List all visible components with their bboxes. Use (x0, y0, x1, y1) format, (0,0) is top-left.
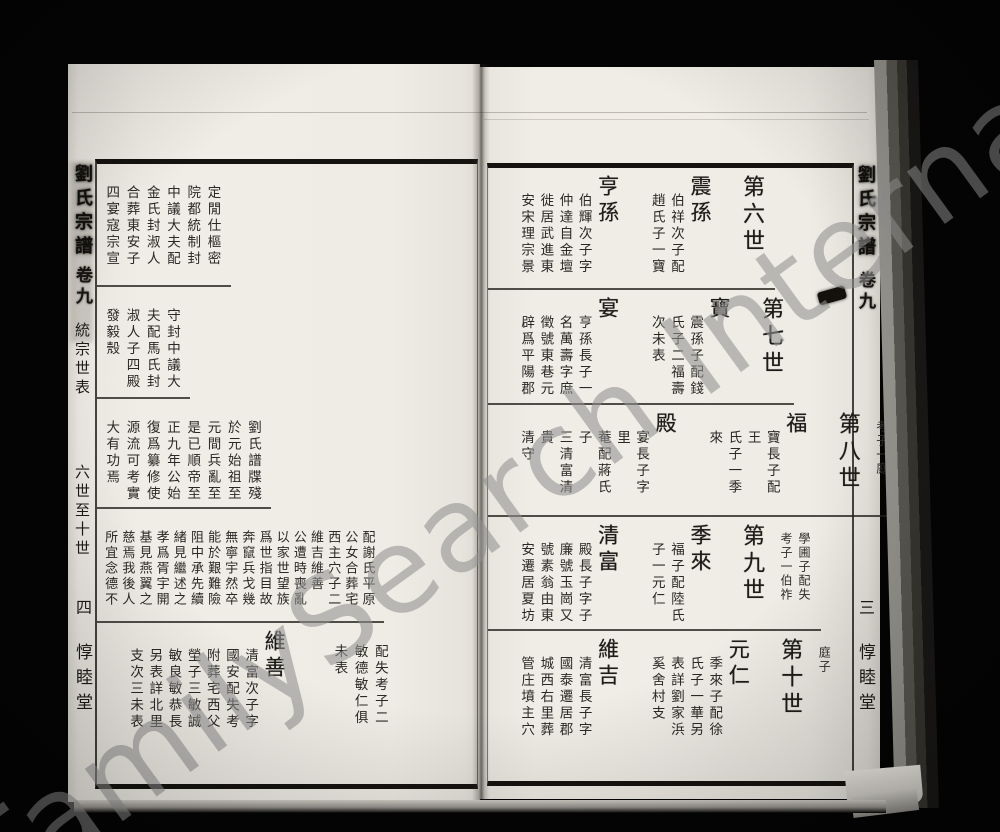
person-entry: 亨孫 伯輝次子字 仲達自金壇 徙居武進東 安宋理宗景 (516, 175, 623, 285)
person-entry: 殿 宴長子字里 菴配蔣氏子 三清富清貴 清守 (516, 412, 680, 512)
margin-note: 學圃子配失 考子一伯祚 (777, 532, 813, 626)
generation-row: 配失考子二 敏德敏仁俱 未表 維善 清富次子字 國安配失考 附葬宅西父 塋子三敏… (97, 623, 398, 734)
person-entry: 維善 清富次子字 國安配失考 附葬宅西父 塋子三敏誠 敏良敏恭長 另表詳北里 支… (125, 630, 289, 731)
hall-name: 惇睦堂 (855, 643, 875, 718)
person-name: 元仁 (723, 638, 753, 739)
generation-row: 第六世 震孫 伯祥次子配 趙氏子一寶 亨孫 伯輝次子字 仲達自金壇 徙居武進東 … (488, 168, 775, 290)
margin-note: 庭子 (815, 646, 833, 739)
person-detail: 清富次子字 國安配失考 附葬宅西父 塋子三敏誠 敏良敏恭長 另表詳北里 支次三未… (125, 648, 259, 731)
continuation-text: 配謝氏平原 公女合葬宅 西主穴子二 維吉維善 公遭時喪亂 以家世望族 爲世指目故… (101, 530, 376, 618)
right-page: 第六世 震孫 伯祥次子配 趙氏子一寶 亨孫 伯輝次子字 仲達自金壇 徙居武進東 … (480, 67, 880, 799)
section-label: 統宗世表 (73, 322, 91, 398)
scanned-genealogy-photo: 劉氏宗譜卷九統宗世表六世至十世四惇睦堂 定閒仕樞密 院都統制封 中議大夫配 金氏… (0, 0, 1000, 832)
bottom-page-edge (74, 800, 886, 813)
person-entry: 元仁 季來子配徐 氏子一華另 表詳劉家浜 奚舍村支 (647, 638, 754, 739)
left-page-spine-column: 劉氏宗譜卷九統宗世表六世至十世四惇睦堂 (71, 164, 95, 787)
person-name: 季來 (685, 524, 715, 626)
generation-row: 守封中議大 夫配馬氏封 淑人子四殿 發毅殼 (97, 287, 190, 399)
volume-label: 卷九 (855, 271, 875, 313)
person-detail: 福子配陸氏 子一元仁 (647, 542, 685, 626)
person-entry: 福 寶長子配王 氏子一季來 (704, 412, 811, 512)
right-page-spine-column: 劉氏宗譜卷九三惇睦堂 (832, 165, 878, 789)
left-page: 劉氏宗譜卷九統宗世表六世至十世四惇睦堂 定閒仕樞密 院都統制封 中議大夫配 金氏… (68, 64, 480, 802)
person-detail: 寶長子配王 氏子一季來 (704, 430, 781, 512)
generation-row: 配謝氏平原 公女合葬宅 西主穴子二 維吉維善 公遭時喪亂 以家世望族 爲世指目故… (97, 509, 384, 623)
person-detail: 清富長子字 國泰遷居郡 城西右里葬 管庄墳主穴 (516, 656, 593, 739)
person-name: 維吉 (593, 638, 623, 739)
left-text-frame: 定閒仕樞密 院都統制封 中議大夫配 金氏封淑人 合葬東安子 四宴寇宗宣 守封中議… (95, 159, 478, 789)
generation-row: 劉氏譜牒殘 於元始祖至 元間兵亂至 是已順帝至 正九年公始 復爲纂修使 源流可考… (97, 399, 271, 509)
person-name: 維善 (259, 630, 289, 731)
generation-label: 第十世 (773, 638, 805, 739)
volume-label: 卷九 (72, 266, 92, 308)
page-number: 三 (856, 599, 875, 619)
continuation-text: 守封中議大 夫配馬氏封 淑人子四殿 發毅殼 (101, 308, 182, 394)
person-name: 福 (781, 412, 811, 512)
generation-row: 定閒仕樞密 院都統制封 中議大夫配 金氏封淑人 合葬東安子 四宴寇宗宣 (97, 164, 231, 287)
person-entry: 宴 亨孫長子一 名萬壽字庶 徵號東巷元 辟爲平陽郡 (516, 297, 623, 400)
person-detail: 伯祥次子配 趙氏子一寶 (647, 193, 685, 285)
person-entry: 清富 殿長子字子 廉號玉崗又 號素翁由東 安遷居夏坊 (516, 524, 623, 626)
page-edge-stack (874, 60, 939, 808)
page-crease-line (484, 119, 869, 120)
continuation-text: 定閒仕樞密 院都統制封 中議大夫配 金氏封淑人 合葬東安子 四宴寇宗宣 (101, 185, 223, 282)
hall-name: 惇睦堂 (72, 643, 92, 718)
book-title: 劉氏宗譜 (855, 165, 876, 261)
person-name: 宴 (593, 297, 623, 400)
person-detail: 亨孫長子一 名萬壽字庶 徵號東巷元 辟爲平陽郡 (516, 315, 593, 400)
page-crease-line (72, 112, 867, 113)
generation-label: 第九世 (735, 524, 767, 626)
generation-row: 庭子 第十世 元仁 季來子配徐 氏子一華另 表詳劉家浜 奚舍村支 維吉 清富長子… (488, 631, 841, 742)
continuation-text: 劉氏譜牒殘 於元始祖至 元間兵亂至 是已順帝至 正九年公始 復爲纂修使 源流可考… (101, 420, 263, 504)
person-name: 亨孫 (593, 175, 623, 285)
continuation-text: 配失考子二 敏德敏仁俱 未表 (329, 644, 390, 731)
generation-range-label: 六世至十世 (73, 464, 91, 559)
person-detail: 震孫子配錢 氏子二福壽 次未表 (647, 315, 704, 400)
person-entry: 寶 震孫子配錢 氏子二福壽 次未表 (647, 297, 734, 400)
generation-label: 第六世 (735, 175, 767, 285)
generation-row: 第七世 寶 震孫子配錢 氏子二福壽 次未表 宴 亨孫長子一 名萬壽字庶 徵號東巷… (488, 290, 794, 405)
person-detail: 宴長子字里 菴配蔣氏子 三清富清貴 清守 (516, 430, 650, 512)
person-detail: 季來子配徐 氏子一華另 表詳劉家浜 奚舍村支 (647, 656, 724, 739)
person-name: 寶 (704, 297, 734, 400)
person-entry: 季來 福子配陸氏 子一元仁 (647, 524, 715, 626)
person-name: 震孫 (685, 175, 715, 285)
person-entry: 維吉 清富長子字 國泰遷居郡 城西右里葬 管庄墳主穴 (516, 638, 623, 739)
person-detail: 殿長子字子 廉號玉崗又 號素翁由東 安遷居夏坊 (516, 542, 593, 626)
page-number: 四 (73, 599, 92, 619)
person-name: 清富 (593, 524, 623, 626)
right-text-frame: 第六世 震孫 伯祥次子配 趙氏子一寶 亨孫 伯輝次子字 仲達自金壇 徙居武進東 … (487, 163, 854, 786)
person-name: 殿 (650, 412, 680, 512)
book-title: 劉氏宗譜 (72, 164, 93, 260)
person-entry: 震孫 伯祥次子配 趙氏子一寶 (647, 175, 715, 285)
generation-label: 第七世 (754, 297, 786, 400)
generation-row: 學圃子配失 考子一伯祚 第九世 季來 福子配陸氏 子一元仁 清富 殿長子字子 廉… (488, 517, 821, 631)
person-detail: 伯輝次子字 仲達自金壇 徙居武進東 安宋理宗景 (516, 193, 593, 285)
gutter-shadow (472, 64, 490, 804)
